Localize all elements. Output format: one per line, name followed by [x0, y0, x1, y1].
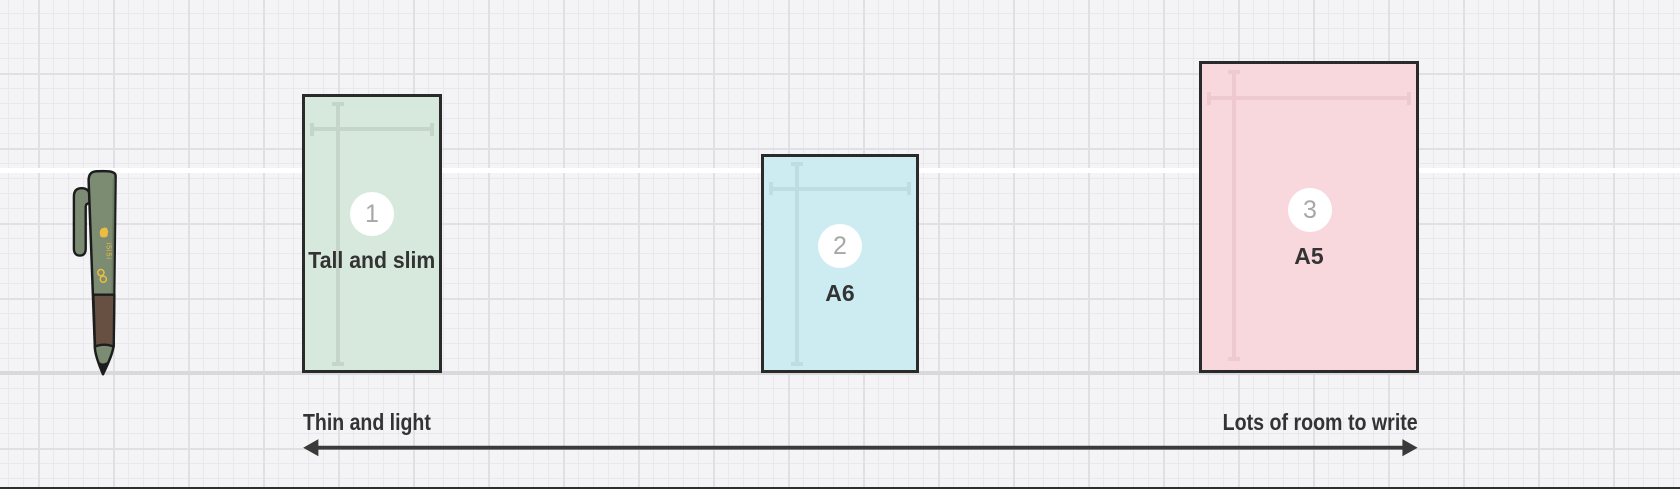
svg-text:i5i5i: i5i5i — [105, 243, 114, 260]
